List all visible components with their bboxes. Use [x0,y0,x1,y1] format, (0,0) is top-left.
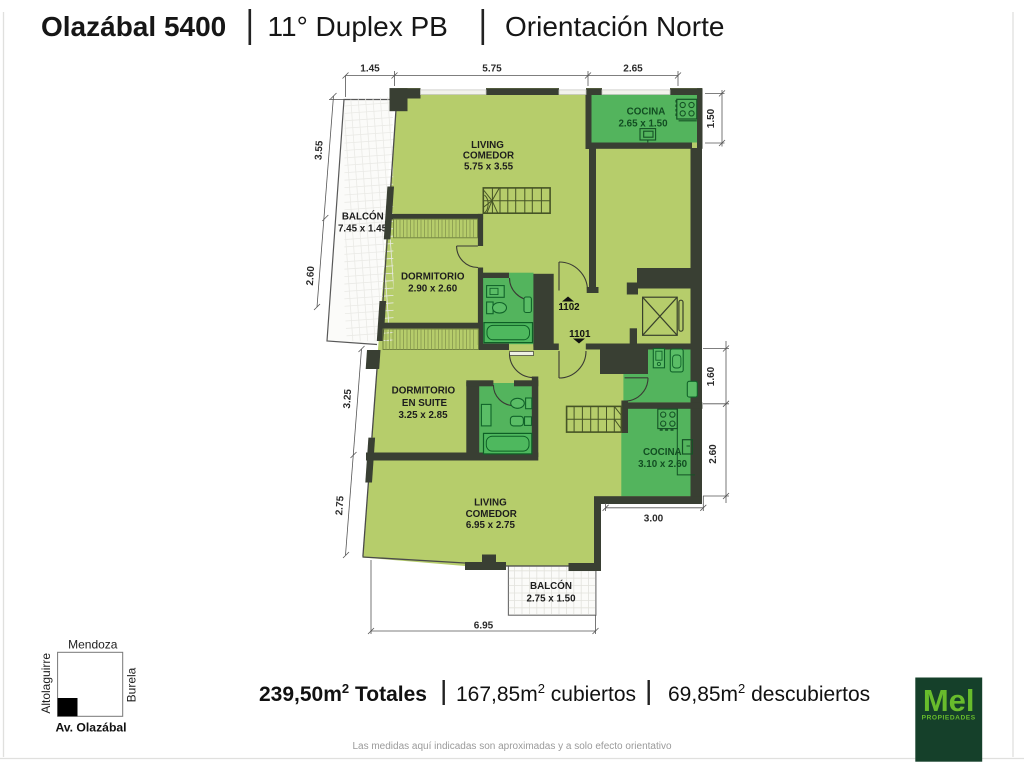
svg-text:2.65 x 1.50: 2.65 x 1.50 [618,119,668,130]
svg-text:BALCÓN: BALCÓN [342,211,384,223]
svg-text:DORMITORIO: DORMITORIO [392,385,456,396]
svg-text:Av. Olazábal: Av. Olazábal [55,721,126,735]
svg-text:Mendoza: Mendoza [68,638,118,652]
svg-text:5.75 x 3.55: 5.75 x 3.55 [464,161,514,172]
svg-text:COCINA: COCINA [643,447,682,458]
svg-text:Olazábal 5400: Olazábal 5400 [41,11,226,42]
svg-text:2.75: 2.75 [334,495,346,516]
svg-text:2.75 x 1.50: 2.75 x 1.50 [526,594,576,605]
svg-text:Altolaguirre: Altolaguirre [39,653,53,714]
svg-text:DORMITORIO: DORMITORIO [401,272,465,283]
svg-text:1.50: 1.50 [706,108,717,128]
svg-text:Las medidas aquí indicadas son: Las medidas aquí indicadas son aproximad… [352,741,672,752]
svg-text:COMEDOR: COMEDOR [466,509,517,520]
svg-text:Burela: Burela [124,667,138,702]
svg-text:69,85m2 descubiertos: 69,85m2 descubiertos [668,681,870,706]
svg-text:Orientación Norte: Orientación Norte [505,11,724,42]
svg-text:1102: 1102 [558,302,580,313]
svg-text:1.45: 1.45 [360,64,380,75]
svg-text:5.75: 5.75 [482,64,502,75]
svg-text:COMEDOR: COMEDOR [463,151,514,162]
svg-text:3.25: 3.25 [342,388,354,409]
svg-text:LIVING: LIVING [474,498,507,509]
svg-text:Mel: Mel [923,683,975,718]
svg-text:3.25 x 2.85: 3.25 x 2.85 [398,410,448,421]
svg-text:167,85m2 cubiertos: 167,85m2 cubiertos [456,681,636,706]
svg-text:6.95 x 2.75: 6.95 x 2.75 [466,520,516,531]
svg-text:1.60: 1.60 [706,366,717,386]
svg-text:EN SUITE: EN SUITE [402,398,448,409]
svg-text:COCINA: COCINA [627,107,666,118]
svg-text:2.60: 2.60 [305,265,317,286]
svg-text:PROPIEDADES: PROPIEDADES [922,715,976,722]
svg-text:3.00: 3.00 [644,514,664,525]
svg-text:2.60: 2.60 [708,444,719,464]
svg-text:7.45 x 1.45: 7.45 x 1.45 [338,224,388,235]
svg-text:LIVING: LIVING [471,140,504,151]
svg-text:6.95: 6.95 [474,621,494,632]
svg-text:3.10 x 2.60: 3.10 x 2.60 [638,459,688,470]
svg-text:BALCÓN: BALCÓN [530,580,572,592]
svg-text:1101: 1101 [569,329,591,340]
svg-text:3.55: 3.55 [313,140,325,161]
svg-text:2.65: 2.65 [623,64,643,75]
svg-text:2.90 x 2.60: 2.90 x 2.60 [408,284,458,295]
svg-text:11° Duplex PB: 11° Duplex PB [268,11,448,42]
